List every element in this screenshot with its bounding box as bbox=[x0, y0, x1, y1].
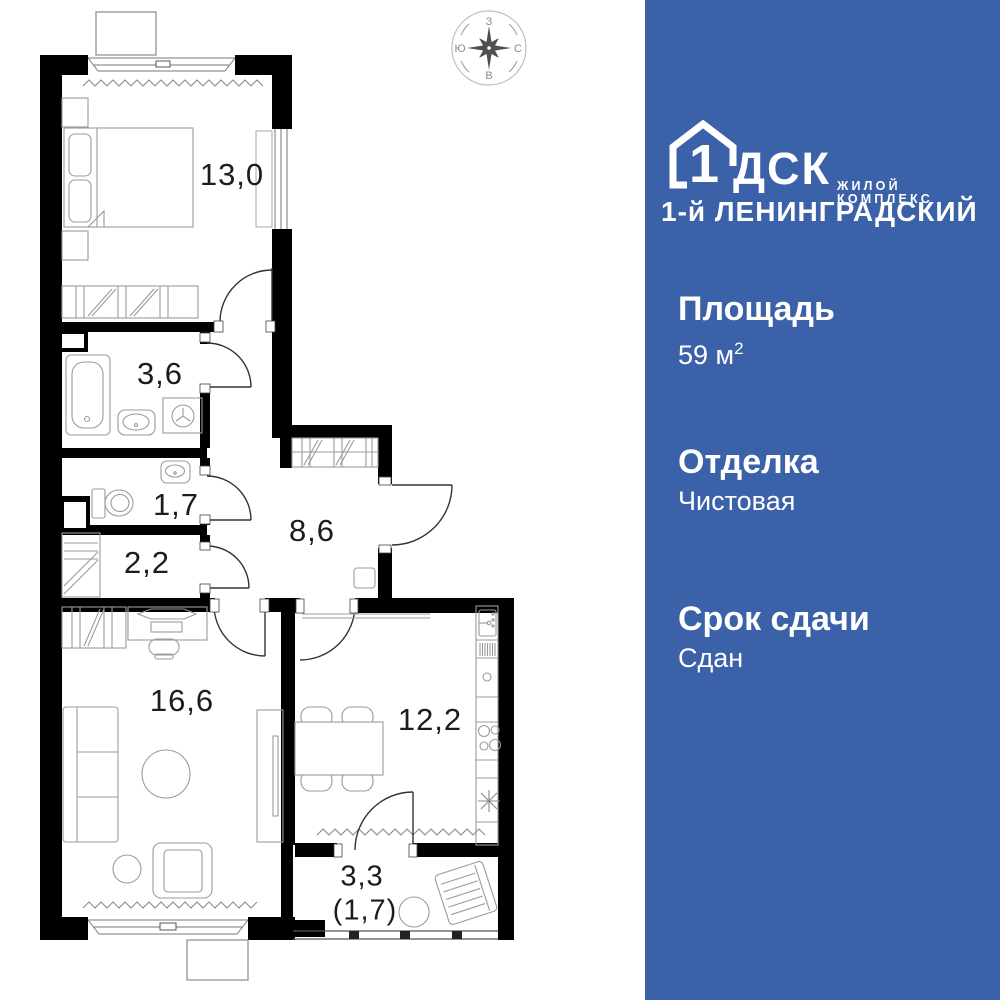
room-label-kitchen: 12,2 bbox=[398, 702, 462, 738]
room-label-balcony-secondary: (1,7) bbox=[333, 895, 398, 928]
room-label-balcony: 3,3 bbox=[340, 861, 383, 894]
closet-furniture bbox=[62, 533, 100, 597]
spec-value-finish: Чистовая bbox=[678, 488, 795, 515]
armchair-icon bbox=[153, 843, 212, 898]
area-value: 59 м bbox=[678, 340, 734, 370]
compass-letter-bottom: В bbox=[485, 70, 492, 82]
compass-letter-left: Ю bbox=[454, 43, 465, 55]
radiator-wave-living bbox=[83, 902, 257, 908]
lounge-chair-icon bbox=[434, 861, 498, 926]
entrance-door bbox=[392, 485, 452, 545]
spec-label-deadline: Срок сдачи bbox=[678, 602, 870, 636]
info-panel: 1 ДСК ЖИЛОЙ КОМПЛЕКС 1-й ЛЕНИНГРАДСКИЙ П… bbox=[645, 0, 1000, 1000]
tv-icon bbox=[273, 736, 278, 816]
spec-label-area: Площадь bbox=[678, 292, 835, 326]
spec-value-deadline: Сдан bbox=[678, 645, 743, 672]
wardrobe-icon bbox=[62, 286, 198, 318]
brand-house-icon: 1 bbox=[669, 119, 739, 189]
complex-name: 1-й ЛЕНИНГРАДСКИЙ bbox=[661, 197, 978, 228]
dining-table-icon bbox=[295, 722, 383, 775]
rug-icon bbox=[142, 750, 190, 798]
compass-rose: З С В Ю bbox=[448, 7, 530, 89]
sofa-icon bbox=[63, 707, 118, 842]
brand-number: 1 bbox=[689, 134, 719, 189]
spec-label-finish: Отделка bbox=[678, 445, 819, 479]
exterior-ledge-top bbox=[96, 12, 156, 55]
bedroom-door bbox=[220, 268, 272, 322]
room-label-closet: 2,2 bbox=[124, 545, 170, 581]
room-label-bathroom: 3,6 bbox=[137, 356, 183, 392]
room-label-living: 16,6 bbox=[150, 683, 214, 719]
wc-door bbox=[207, 476, 251, 520]
floor-plan bbox=[0, 0, 645, 1000]
living-furniture bbox=[62, 607, 283, 898]
listing-card: З С В Ю 13,0 3,6 1,7 2,2 8,6 16,6 12,2 3… bbox=[0, 0, 1000, 1000]
kitchen-door bbox=[300, 605, 355, 660]
stool-icon bbox=[354, 568, 375, 588]
room-label-hallway: 8,6 bbox=[289, 513, 335, 549]
bathroom-door bbox=[207, 343, 251, 387]
nightstand-icon bbox=[62, 98, 88, 127]
balcony-furniture bbox=[399, 861, 498, 927]
balcony-table-icon bbox=[399, 897, 429, 927]
toilet-icon bbox=[92, 489, 105, 518]
dish-rack-icon bbox=[480, 643, 495, 656]
spec-value-area: 59 м2 bbox=[678, 340, 744, 369]
closet-door bbox=[207, 546, 249, 588]
room-label-wc: 1,7 bbox=[153, 487, 199, 523]
compass-letter-right: С bbox=[514, 43, 522, 55]
brand-name: ДСК bbox=[733, 146, 831, 191]
chair-icon bbox=[149, 639, 179, 655]
nightstand-icon bbox=[62, 231, 88, 260]
bedroom-furniture bbox=[62, 98, 198, 318]
compass-letter-top: З bbox=[486, 16, 493, 28]
radiator-wave-bedroom bbox=[83, 80, 263, 86]
balcony-door bbox=[355, 792, 413, 850]
radiator-wave-kitchen bbox=[317, 829, 485, 835]
room-label-bedroom: 13,0 bbox=[200, 157, 264, 193]
area-sup: 2 bbox=[734, 339, 743, 358]
tv-stand-icon bbox=[257, 710, 283, 842]
coffee-table-icon bbox=[113, 855, 141, 883]
vent-star-icon bbox=[478, 790, 500, 812]
bed-icon bbox=[64, 128, 193, 227]
stove-icon bbox=[479, 726, 501, 751]
exterior-ledge-bottom bbox=[187, 940, 248, 980]
living-door bbox=[214, 605, 265, 656]
